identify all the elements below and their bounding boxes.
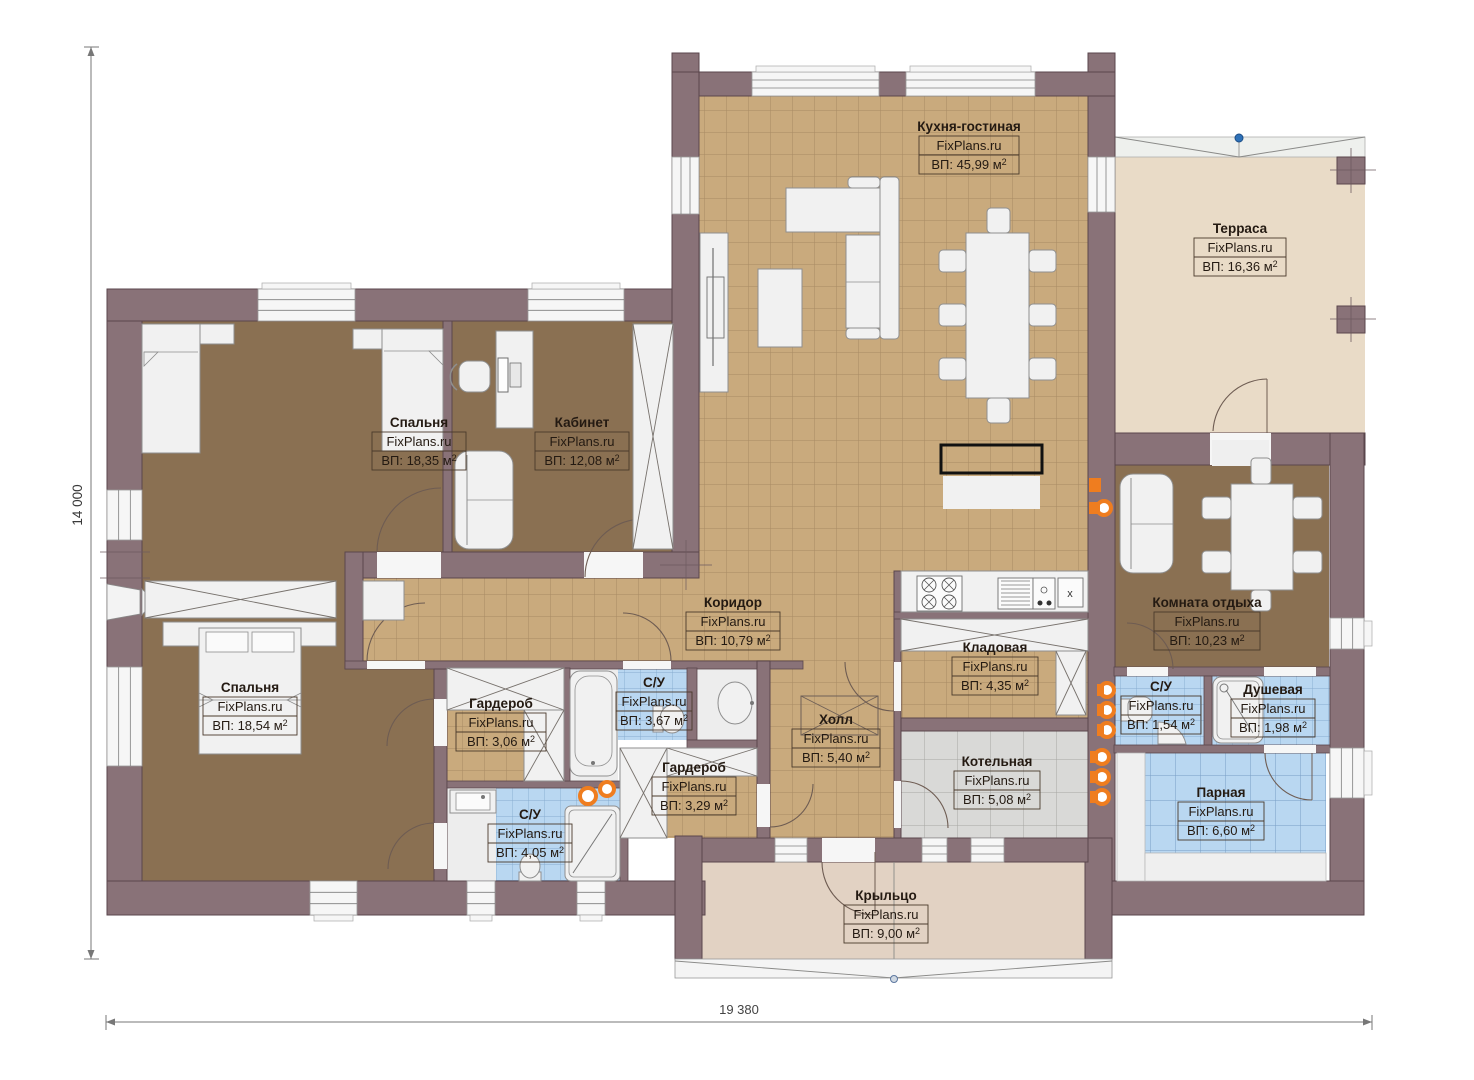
svg-text:Кухня-гостиная: Кухня-гостиная bbox=[917, 119, 1020, 134]
svg-text:FixPlans.ru: FixPlans.ru bbox=[853, 907, 918, 922]
svg-text:ВП: 45,99 м2: ВП: 45,99 м2 bbox=[931, 157, 1006, 172]
svg-text:ВП: 3,67 м2: ВП: 3,67 м2 bbox=[620, 713, 688, 728]
svg-text:Терраса: Терраса bbox=[1213, 221, 1268, 236]
svg-text:ВП: 4,35 м2: ВП: 4,35 м2 bbox=[961, 678, 1029, 693]
svg-text:Котельная: Котельная bbox=[962, 754, 1033, 769]
svg-text:Кладовая: Кладовая bbox=[963, 640, 1028, 655]
svg-text:FixPlans.ru: FixPlans.ru bbox=[468, 715, 533, 730]
svg-text:ВП: 10,79 м2: ВП: 10,79 м2 bbox=[695, 633, 770, 648]
svg-text:x: x bbox=[1067, 588, 1073, 600]
svg-text:FixPlans.ru: FixPlans.ru bbox=[964, 773, 1029, 788]
svg-text:Спальня: Спальня bbox=[390, 415, 448, 430]
svg-text:ВП: 6,60 м2: ВП: 6,60 м2 bbox=[1187, 823, 1255, 838]
svg-text:FixPlans.ru: FixPlans.ru bbox=[621, 694, 686, 709]
svg-text:FixPlans.ru: FixPlans.ru bbox=[217, 699, 282, 714]
svg-text:Гардероб: Гардероб bbox=[469, 696, 533, 711]
svg-text:Парная: Парная bbox=[1197, 785, 1246, 800]
svg-text:ВП: 3,06 м2: ВП: 3,06 м2 bbox=[467, 734, 535, 749]
svg-text:Гардероб: Гардероб bbox=[662, 760, 726, 775]
svg-text:С/У: С/У bbox=[643, 675, 666, 690]
svg-text:ВП: 9,00 м2: ВП: 9,00 м2 bbox=[852, 926, 920, 941]
svg-text:FixPlans.ru: FixPlans.ru bbox=[549, 434, 614, 449]
svg-text:ВП: 5,08 м2: ВП: 5,08 м2 bbox=[963, 792, 1031, 807]
svg-text:ВП: 12,08 м2: ВП: 12,08 м2 bbox=[544, 453, 619, 468]
svg-text:14 000: 14 000 bbox=[70, 484, 85, 525]
svg-text:Холл: Холл bbox=[819, 712, 853, 727]
svg-text:FixPlans.ru: FixPlans.ru bbox=[1188, 804, 1253, 819]
svg-text:ВП: 18,35 м2: ВП: 18,35 м2 bbox=[381, 453, 456, 468]
svg-text:Крыльцо: Крыльцо bbox=[855, 888, 916, 903]
svg-text:FixPlans.ru: FixPlans.ru bbox=[497, 826, 562, 841]
svg-text:ВП: 18,54 м2: ВП: 18,54 м2 bbox=[212, 718, 287, 733]
svg-text:Кабинет: Кабинет bbox=[555, 415, 610, 430]
svg-text:С/У: С/У bbox=[519, 807, 542, 822]
svg-text:Комната отдыха: Комната отдыха bbox=[1152, 595, 1262, 610]
svg-text:FixPlans.ru: FixPlans.ru bbox=[1240, 701, 1305, 716]
svg-text:С/У: С/У bbox=[1150, 679, 1173, 694]
svg-text:Коридор: Коридор bbox=[704, 595, 762, 610]
svg-text:FixPlans.ru: FixPlans.ru bbox=[962, 659, 1027, 674]
svg-text:19 380: 19 380 bbox=[719, 1002, 759, 1017]
svg-text:FixPlans.ru: FixPlans.ru bbox=[700, 614, 765, 629]
svg-text:FixPlans.ru: FixPlans.ru bbox=[661, 779, 726, 794]
svg-text:FixPlans.ru: FixPlans.ru bbox=[1128, 698, 1193, 713]
svg-text:ВП: 16,36 м2: ВП: 16,36 м2 bbox=[1202, 259, 1277, 274]
svg-text:Спальня: Спальня bbox=[221, 680, 279, 695]
svg-text:FixPlans.ru: FixPlans.ru bbox=[1174, 614, 1239, 629]
svg-text:ВП: 3,29 м2: ВП: 3,29 м2 bbox=[660, 798, 728, 813]
svg-text:ВП: 1,54 м2: ВП: 1,54 м2 bbox=[1127, 717, 1195, 732]
svg-text:ВП: 10,23 м2: ВП: 10,23 м2 bbox=[1169, 633, 1244, 648]
svg-text:ВП: 5,40 м2: ВП: 5,40 м2 bbox=[802, 750, 870, 765]
svg-text:FixPlans.ru: FixPlans.ru bbox=[1207, 240, 1272, 255]
svg-text:Душевая: Душевая bbox=[1243, 682, 1303, 697]
svg-text:ВП: 4,05 м2: ВП: 4,05 м2 bbox=[496, 845, 564, 860]
svg-text:FixPlans.ru: FixPlans.ru bbox=[936, 138, 1001, 153]
svg-text:FixPlans.ru: FixPlans.ru bbox=[386, 434, 451, 449]
svg-text:FixPlans.ru: FixPlans.ru bbox=[803, 731, 868, 746]
svg-text:ВП: 1,98 м2: ВП: 1,98 м2 bbox=[1239, 720, 1307, 735]
